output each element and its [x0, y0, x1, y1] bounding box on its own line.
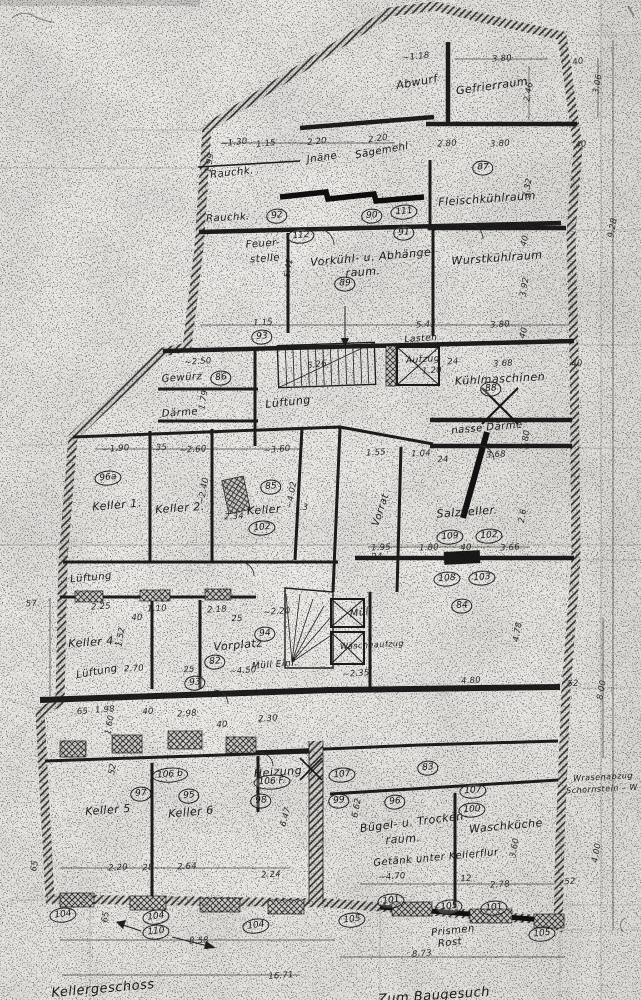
- dimension-label: 24: [447, 357, 459, 368]
- circled-number: 88: [480, 381, 502, 397]
- dimension-label: 1.55: [366, 447, 386, 458]
- dimension-label: 1.60: [103, 714, 116, 735]
- room-label: Lasten: [404, 333, 438, 345]
- dimension-label: 2.46: [522, 81, 535, 102]
- circled-number: 86: [210, 370, 232, 386]
- room-label: Jnäne: [306, 150, 338, 165]
- dimension-label: ~4.02: [285, 481, 300, 509]
- circled-number: 102: [475, 528, 503, 545]
- room-label: Sägemehl: [354, 141, 409, 161]
- dimension-label: 40: [142, 707, 154, 718]
- dimension-label: 1.04: [411, 448, 431, 459]
- room-label: Kellergeschoss: [51, 977, 155, 1000]
- dimension-label: 1.79: [197, 389, 210, 410]
- dimension-label: 1.20: [422, 365, 442, 376]
- room-label: Waschküche: [469, 816, 544, 835]
- dimension-label: 40: [575, 139, 588, 150]
- room-label: Müll: [349, 606, 373, 620]
- circled-number: 90: [361, 208, 383, 224]
- circled-number: 105: [338, 911, 367, 929]
- dimension-label: 2.98: [177, 708, 197, 719]
- room-label: Aufzug: [406, 354, 441, 366]
- dimension-label: 3.68: [493, 358, 513, 369]
- dimension-label: 2.20: [368, 133, 389, 146]
- circled-number: 104: [49, 906, 78, 924]
- dimension-label: .3: [300, 503, 309, 513]
- dimension-label: 40: [216, 720, 228, 731]
- dimension-label: 3.92: [518, 276, 531, 297]
- dimension-label: 2.34: [224, 511, 244, 522]
- dimension-label: ~2.35: [342, 668, 370, 680]
- room-label: Vorrat: [371, 492, 392, 527]
- room-label: Schornstein – W: [566, 783, 638, 796]
- room-label: Zum Baugesuch: [378, 985, 491, 1000]
- dimension-label: 5.43: [416, 319, 436, 330]
- dimension-label: ~4.70: [378, 871, 406, 883]
- dimension-label: 4.78: [511, 621, 524, 642]
- room-label: Müll Einf.: [252, 658, 299, 671]
- dimension-label: 2.64: [177, 861, 197, 872]
- dimension-label: 52: [567, 679, 579, 690]
- room-label: nasse Därme: [451, 419, 523, 436]
- dimension-label: 25: [231, 614, 243, 625]
- dimension-label: ~3.60: [263, 444, 291, 456]
- room-label: stelle: [250, 252, 281, 265]
- dimension-label: 3.60: [508, 837, 521, 858]
- room-label: Keller 5: [85, 802, 131, 818]
- label-layer: AbwurfGefrierraumJnäneSägemehlRauchk.Rau…: [0, 0, 641, 1000]
- circled-number: 107: [459, 783, 487, 800]
- dimension-label: 40: [131, 613, 143, 624]
- dimension-label: 8.58: [189, 935, 209, 946]
- circled-number: 84: [451, 598, 473, 614]
- circled-number: 111: [390, 203, 418, 220]
- dimension-label: 2.20: [307, 136, 328, 148]
- dimension-label: .35: [153, 443, 168, 454]
- dimension-label: 4.00: [590, 842, 603, 863]
- dimension-label: 65: [29, 860, 41, 873]
- circled-number: 97: [130, 786, 152, 802]
- room-label: Gewürz: [161, 371, 202, 385]
- dimension-label: 3.80: [490, 319, 510, 330]
- dimension-label: 40: [518, 326, 531, 339]
- room-label: Getänk unter Kellerflur: [373, 847, 499, 869]
- dimension-label: 1.98: [95, 704, 115, 715]
- dimension-label: 40: [519, 234, 532, 247]
- dimension-label: 2.78: [490, 879, 510, 890]
- circled-number: 82: [204, 654, 226, 670]
- dimension-label: 4.80: [461, 675, 481, 686]
- dimension-label: 2.18: [207, 604, 227, 615]
- dimension-label: 16.71: [268, 970, 294, 982]
- circled-number: 96a: [94, 469, 122, 486]
- circled-number: 104: [142, 908, 171, 926]
- room-label: raum.: [385, 831, 421, 846]
- room-label: Wrasenabzug: [573, 771, 633, 783]
- room-label: Wurstkühlraum: [451, 248, 543, 267]
- circled-number: 107: [328, 766, 356, 783]
- dimension-label: ~4.50: [229, 665, 257, 677]
- circled-number: 96: [384, 794, 406, 810]
- circled-number: 105: [528, 925, 557, 943]
- room-label: Abwurf: [395, 72, 438, 92]
- dimension-label: .65: [74, 707, 89, 718]
- circled-number: 105: [435, 898, 464, 916]
- dimension-label: 1.80: [419, 542, 439, 553]
- circled-number: 110: [142, 923, 170, 940]
- circled-number: 102: [248, 519, 276, 536]
- dimension-label: ~2.40: [197, 477, 212, 505]
- dimension-label: 57.: [26, 599, 41, 610]
- dimension-label: ~1.90: [102, 443, 130, 455]
- floor-plan-sheet: AbwurfGefrierraumJnäneSägemehlRauchk.Rau…: [0, 0, 641, 1000]
- dimension-label: 3.06: [591, 73, 604, 94]
- dimension-label: 9.28: [606, 217, 619, 238]
- circled-number: 91: [393, 225, 415, 241]
- dimension-label: 2.30: [258, 713, 278, 724]
- circled-number: 94: [254, 626, 276, 642]
- circled-number: 85: [260, 479, 282, 495]
- circled-number: 93: [184, 675, 207, 692]
- dimension-label: 24: [371, 552, 383, 563]
- dimension-label: ~1.18: [402, 51, 430, 64]
- circled-number: 83: [417, 760, 439, 776]
- circled-number: 89: [334, 277, 355, 292]
- dimension-label: 1.80: [519, 429, 532, 450]
- dimension-label: 2.6: [517, 508, 529, 524]
- dimension-label: 3.80: [490, 138, 510, 149]
- room-label: Salzkeller.: [436, 503, 498, 520]
- dimension-label: 40: [572, 56, 585, 68]
- dimension-label: 8.00: [595, 679, 608, 700]
- dimension-label: 5.42: [283, 258, 296, 279]
- dimension-label: 6.47: [279, 806, 294, 828]
- dimension-label: 2.80: [437, 138, 457, 149]
- dimension-label: ~2.50: [184, 356, 212, 368]
- dimension-label: 2.20: [108, 862, 128, 873]
- circled-number: 93: [251, 329, 273, 345]
- dimension-label: 5.26: [307, 359, 328, 372]
- dimension-label: 1.15: [256, 138, 277, 150]
- dimension-label: 2.70: [124, 663, 144, 674]
- room-label: Keller 1.: [92, 496, 142, 513]
- circled-number: 98: [250, 793, 272, 809]
- dimension-label: 52: [107, 763, 119, 776]
- circled-number: 95: [178, 788, 200, 804]
- dimension-label: 3.66: [500, 542, 520, 553]
- dimension-label: 24: [437, 455, 449, 466]
- circled-number: 101: [480, 899, 508, 916]
- circled-number: 87: [472, 161, 493, 176]
- room-label: Rauchk.: [210, 165, 255, 181]
- room-label: Feuer-: [245, 237, 280, 250]
- room-label: Gefrierraum: [455, 75, 529, 98]
- dimension-label: 1.15: [253, 317, 273, 328]
- circled-number: 99: [328, 793, 350, 809]
- circled-number: 92: [266, 208, 289, 225]
- dimension-label: 8.73: [412, 948, 432, 959]
- dimension-label: ~2.20: [263, 606, 291, 618]
- circled-number: 106 F.: [253, 774, 291, 791]
- circled-number: 100: [458, 802, 486, 819]
- dimension-label: ~2.60: [179, 444, 207, 456]
- circled-number: 112: [287, 227, 315, 244]
- circled-number: 106 b: [152, 766, 189, 783]
- room-label: Lüftung: [265, 393, 312, 411]
- dimension-label: 65: [100, 911, 112, 924]
- dimension-label: 2.25: [91, 601, 111, 612]
- dimension-label: 3.80: [492, 53, 512, 64]
- dimension-label: 40: [571, 358, 583, 369]
- dimension-label: 3.68: [486, 449, 506, 460]
- dimension-label: 40: [460, 543, 472, 554]
- room-label: Rost: [437, 936, 462, 949]
- dimension-label: 28: [142, 863, 154, 874]
- room-label: Därme: [161, 406, 198, 420]
- room-label: Lüftung: [75, 663, 118, 681]
- room-label: Rauchk.: [206, 211, 250, 224]
- circled-number: 103: [468, 570, 496, 587]
- dimension-label: 12: [460, 874, 472, 885]
- room-label: Wäscheaufzug: [340, 639, 404, 651]
- circled-number: 108: [433, 571, 461, 588]
- dimension-label: 25: [183, 665, 195, 676]
- room-label: Keller: [247, 502, 282, 517]
- dimension-label: 1.10: [147, 603, 167, 614]
- dimension-label: 6.62: [350, 797, 363, 818]
- room-label: Lüftung: [70, 571, 113, 586]
- dimension-label: 1.52: [114, 626, 127, 647]
- room-label: Keller 6: [168, 804, 214, 821]
- room-label: Keller 4.: [68, 634, 118, 650]
- dimension-label: 52: [564, 877, 576, 888]
- dimension-label: 2.24: [261, 869, 281, 880]
- dimension-label: ~1.30: [220, 137, 248, 150]
- circled-number: 101: [377, 892, 406, 910]
- circled-number: 104: [242, 917, 271, 935]
